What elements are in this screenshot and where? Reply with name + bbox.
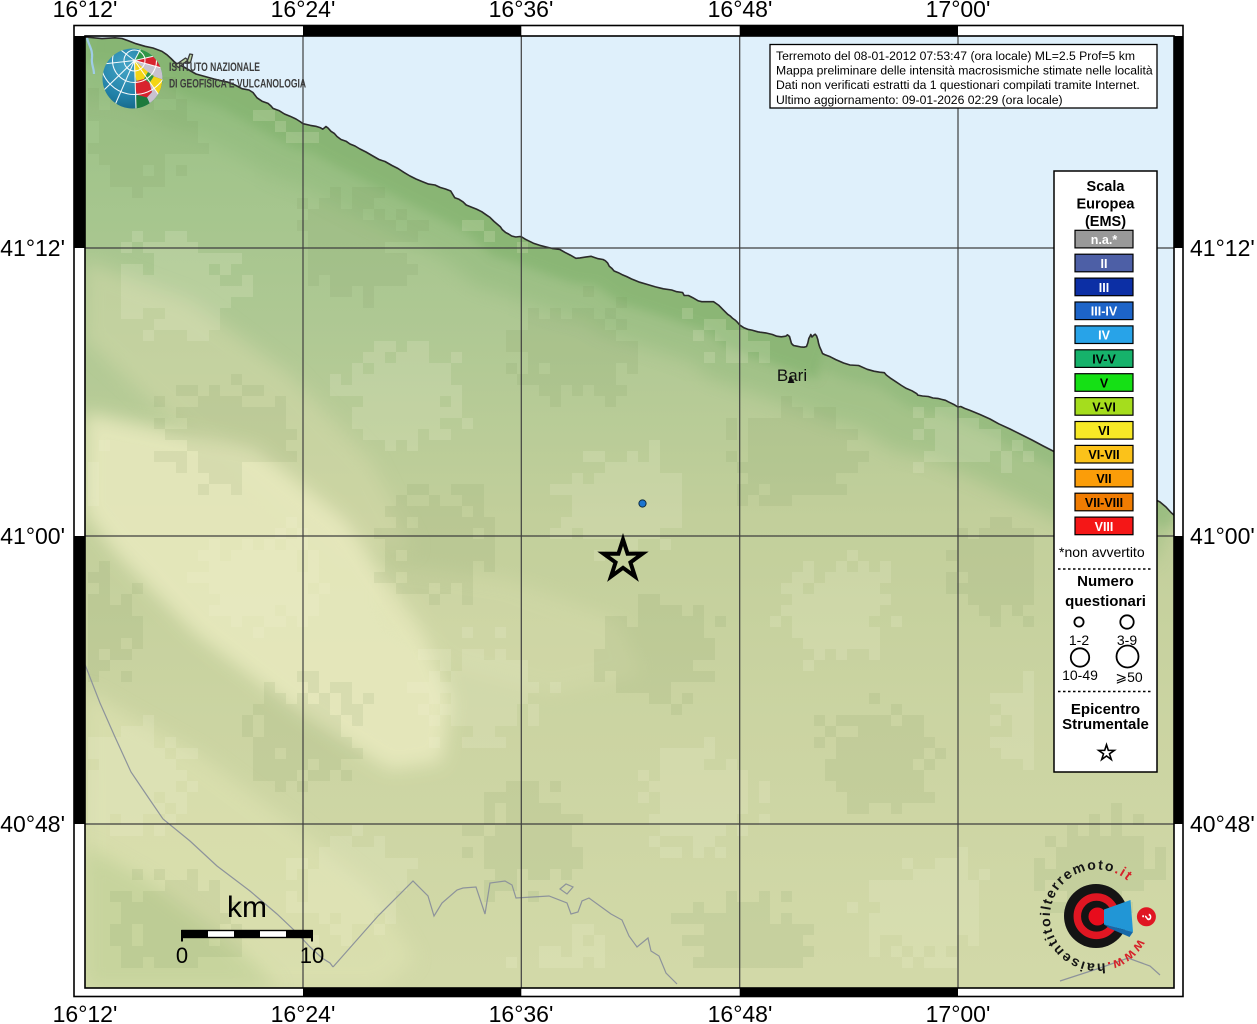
svg-text:III-IV: III-IV [1091, 305, 1118, 319]
svg-text:10-49: 10-49 [1062, 667, 1098, 683]
svg-text:16°12': 16°12' [53, 0, 118, 22]
svg-text:16°36': 16°36' [489, 0, 554, 22]
svg-text:40°48': 40°48' [1190, 811, 1255, 837]
svg-text:41°00': 41°00' [1190, 523, 1255, 549]
svg-text:⩾50: ⩾50 [1115, 669, 1143, 685]
svg-text:16°12': 16°12' [53, 1001, 118, 1024]
svg-text:VII-VIII: VII-VIII [1085, 496, 1123, 510]
svg-text:III: III [1099, 281, 1109, 295]
svg-text:41°12': 41°12' [0, 235, 65, 261]
svg-text:IV-V: IV-V [1092, 353, 1116, 367]
svg-text:16°48': 16°48' [708, 0, 773, 22]
svg-text:VI-VII: VI-VII [1088, 448, 1119, 462]
svg-text:41°00': 41°00' [0, 523, 65, 549]
svg-text:Numero: Numero [1077, 573, 1134, 590]
svg-text:17°00': 17°00' [926, 1001, 991, 1024]
svg-text:V: V [1100, 376, 1109, 390]
svg-text:17°00': 17°00' [926, 0, 991, 22]
svg-text:Dati non verificati estratti d: Dati non verificati estratti da 1 questi… [776, 78, 1140, 92]
svg-text:Mappa preliminare delle intens: Mappa preliminare delle intensità macros… [776, 64, 1153, 78]
svg-text:Ultimo aggiornamento: 09-01-20: Ultimo aggiornamento: 09-01-2026 02:29 (… [776, 93, 1063, 107]
svg-text:10: 10 [300, 943, 324, 968]
svg-text:Strumentale: Strumentale [1062, 716, 1149, 733]
svg-text:ISTITUTO NAZIONALE: ISTITUTO NAZIONALE [169, 62, 260, 74]
svg-text:VIII: VIII [1095, 520, 1114, 534]
svg-text:16°24': 16°24' [271, 0, 336, 22]
svg-text:Terremoto del 08-01-2012 07:53: Terremoto del 08-01-2012 07:53:47 (ora l… [776, 49, 1135, 63]
svg-text:41°12': 41°12' [1190, 235, 1255, 261]
svg-text:?: ? [1139, 912, 1155, 921]
svg-text:n.a.*: n.a.* [1091, 233, 1118, 247]
svg-text:VI: VI [1098, 424, 1110, 438]
svg-text:16°48': 16°48' [708, 1001, 773, 1024]
svg-text:1-2: 1-2 [1069, 632, 1089, 648]
svg-text:0: 0 [176, 943, 188, 968]
svg-text:VII: VII [1096, 472, 1111, 486]
svg-text:II: II [1101, 257, 1108, 271]
svg-text:40°48': 40°48' [0, 811, 65, 837]
svg-text:(EMS): (EMS) [1085, 214, 1126, 230]
svg-text:km: km [227, 891, 267, 924]
svg-text:IV: IV [1098, 329, 1110, 343]
svg-text:Bari: Bari [777, 366, 807, 385]
svg-text:DI GEOFISICA E VULCANOLOGIA: DI GEOFISICA E VULCANOLOGIA [169, 79, 306, 91]
svg-text:*non avvertito: *non avvertito [1059, 544, 1145, 560]
svg-text:questionari: questionari [1065, 593, 1146, 610]
svg-text:Scala: Scala [1087, 179, 1126, 195]
svg-text:Europea: Europea [1076, 197, 1135, 213]
svg-text:V-VI: V-VI [1092, 400, 1116, 414]
svg-text:16°24': 16°24' [271, 1001, 336, 1024]
svg-text:16°36': 16°36' [489, 1001, 554, 1024]
